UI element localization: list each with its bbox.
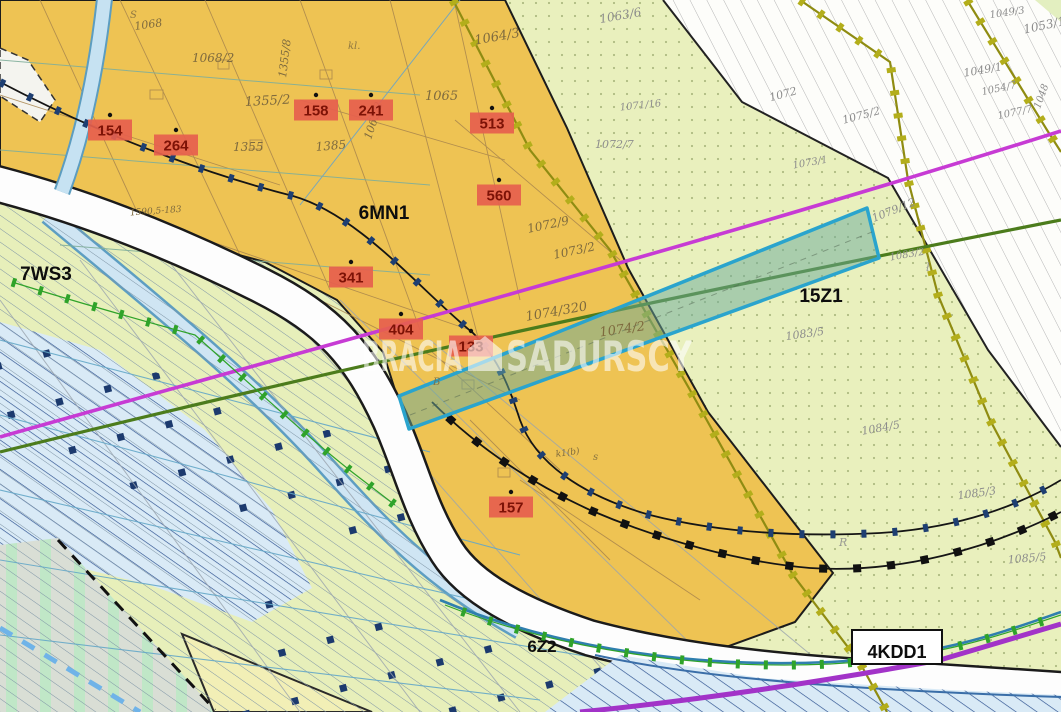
svg-text:157: 157 xyxy=(498,500,523,517)
zoning-map[interactable]: 6MN1 7WS3 15Z1 6Z2 4KDD1 1068 1068/2 135… xyxy=(0,0,1061,712)
map-canvas: 6MN1 7WS3 15Z1 6Z2 4KDD1 1068 1068/2 135… xyxy=(0,0,1061,712)
watermark: BRACIA SADURSCY xyxy=(362,332,692,381)
svg-text:264: 264 xyxy=(163,138,189,155)
svg-text:341: 341 xyxy=(338,270,363,287)
zone-label-6z2: 6Z2 xyxy=(527,637,556,656)
parcel-number: 1065 xyxy=(425,89,458,104)
zone-label-6mn1: 6MN1 xyxy=(359,203,410,224)
svg-text:154: 154 xyxy=(97,123,123,140)
svg-text:513: 513 xyxy=(479,116,504,133)
parcel-number: 1068/2 xyxy=(192,51,234,65)
parcel-number: 1072/7 xyxy=(595,138,634,151)
parcel-number: 1385 xyxy=(315,137,347,154)
zone-label-4kdd1: 4KDD1 xyxy=(867,642,926,662)
svg-text:241: 241 xyxy=(358,103,383,120)
parcel-number: 1355/2 xyxy=(244,93,290,110)
survey-letter: R xyxy=(838,536,847,549)
survey-letter: s xyxy=(593,452,598,463)
zone-label-15z1: 15Z1 xyxy=(799,286,843,307)
survey-letter: kl. xyxy=(348,41,360,52)
parcel-number: 1355 xyxy=(233,140,264,154)
watermark-text-right: SADURSCY xyxy=(506,332,692,381)
zone-label-7ws3: 7WS3 xyxy=(20,264,72,285)
watermark-text-left: BRACIA xyxy=(362,332,462,381)
survey-letter: S xyxy=(130,10,137,21)
svg-text:158: 158 xyxy=(303,103,328,120)
survey-letter: ł xyxy=(926,261,930,274)
svg-text:560: 560 xyxy=(486,188,511,205)
zone-label-4kdd1-box: 4KDD1 xyxy=(852,630,942,664)
